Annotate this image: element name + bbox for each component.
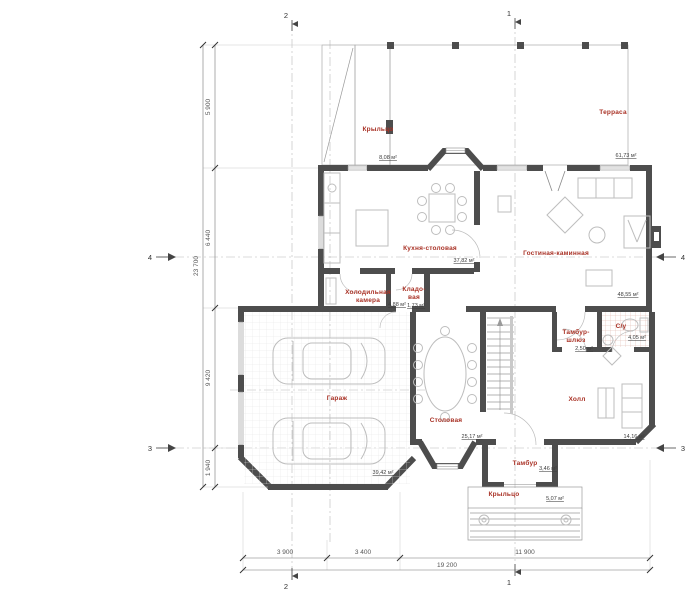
dining-furniture — [414, 327, 477, 422]
french-door-leaf — [545, 171, 552, 191]
room-label-pantry-2: вая — [408, 294, 420, 301]
kitchen-sink — [328, 184, 336, 192]
dim-bottom-total: 19 200 — [437, 562, 457, 569]
room-label-dining: Столовая — [430, 417, 463, 424]
stairs-direction-arrow — [497, 318, 503, 326]
room-label-living: Гостиная-каминная — [523, 250, 589, 257]
room-label-vestibule: Тамбур — [513, 459, 538, 467]
kitchen-island — [356, 210, 388, 246]
floor-plan-page: Терраса 61,73 м² Крыльцо 8,08 м² Кухня-с… — [0, 0, 700, 592]
steps-direction-line — [324, 48, 353, 162]
area-vestibule: 3,46 м² — [539, 466, 557, 472]
room-label-cold-room-2: камера — [356, 297, 380, 304]
porch-column — [561, 515, 571, 525]
dining-bay-window — [420, 442, 475, 466]
area-wc: 4,05 м² — [628, 335, 646, 341]
hall-sofa — [622, 384, 642, 428]
room-label-kitchen: Кухня-столовая — [403, 245, 457, 252]
dim-left-4: 1 940 — [205, 459, 212, 476]
armchair — [498, 196, 511, 212]
room-label-hall: Холл — [568, 396, 585, 403]
porch-bottom — [468, 487, 582, 540]
room-label-cold-room-1: Холодильная — [345, 289, 391, 296]
hall-furniture — [598, 347, 642, 428]
dim-left-total: 23 700 — [193, 256, 200, 276]
axis-marker-4-left: 4 — [148, 253, 152, 262]
area-dining: 25,17 м² — [462, 434, 483, 440]
kitchen-table — [429, 194, 455, 222]
room-label-porch-top: Крыльцо — [363, 126, 394, 133]
dim-bottom-1: 3 900 — [277, 549, 294, 556]
dining-table — [424, 337, 466, 411]
kitchen-chairs — [418, 184, 467, 235]
room-label-airlock-1: Тамбур- — [562, 328, 589, 336]
room-label-pantry-1: Кладо- — [402, 286, 425, 293]
rug — [547, 197, 583, 233]
axis-marker-4-right: 4 — [681, 253, 685, 262]
room-label-terrace: Терраса — [599, 109, 627, 116]
terrace-posts — [386, 42, 628, 134]
axis-marker-3-left: 3 — [148, 444, 152, 453]
dining-chairs — [414, 327, 477, 422]
area-cold-room: 4,88 м² — [388, 302, 406, 308]
area-airlock: 2,50 м² — [575, 346, 593, 352]
area-pantry: 1,73 м² — [407, 303, 425, 309]
cold-room-shelf — [326, 278, 336, 304]
room-label-wc: С/у — [616, 323, 627, 330]
tv-stand — [586, 270, 612, 286]
porch-top-deck — [355, 45, 390, 165]
sofa — [578, 178, 632, 198]
room-label-airlock-2: шлюз — [566, 337, 586, 344]
area-porch-top: 8,08 м² — [379, 155, 397, 161]
area-kitchen: 37,82 м² — [454, 258, 475, 264]
axis-marker-2-bottom: 2 — [284, 582, 288, 591]
room-label-garage: Гараж — [327, 395, 348, 402]
floor-plan-drawing: Терраса 61,73 м² Крыльцо 8,08 м² Кухня-с… — [0, 0, 700, 592]
living-furniture — [498, 178, 650, 286]
area-living: 48,55 м² — [618, 292, 639, 298]
area-porch-bottom: 5,07 м² — [546, 496, 564, 502]
dim-left-2: 6 440 — [205, 229, 212, 246]
dim-bottom-2: 3 400 — [355, 549, 372, 556]
axis-marker-1-bottom: 1 — [507, 578, 511, 587]
staircase — [487, 316, 514, 414]
area-terrace: 61,73 м² — [616, 153, 637, 159]
porch-column — [479, 515, 489, 525]
room-label-porch-bottom: Крыльцо — [489, 491, 520, 498]
axis-marker-3-right: 3 — [681, 444, 685, 453]
kitchen-bay-window — [428, 151, 483, 169]
dim-left-1: 5 900 — [205, 98, 212, 115]
terrace — [322, 42, 628, 165]
area-hall: 14,16 м² — [624, 434, 645, 440]
dim-left-3: 9 420 — [205, 369, 212, 386]
french-door-leaf — [558, 171, 565, 191]
area-garage: 39,42 м² — [373, 470, 394, 476]
coffee-table — [589, 227, 605, 243]
axis-marker-1-top: 1 — [507, 9, 511, 18]
dim-bottom-3: 11 900 — [515, 549, 535, 556]
axis-marker-2-top: 2 — [284, 11, 288, 20]
terrace-deck — [390, 45, 628, 165]
